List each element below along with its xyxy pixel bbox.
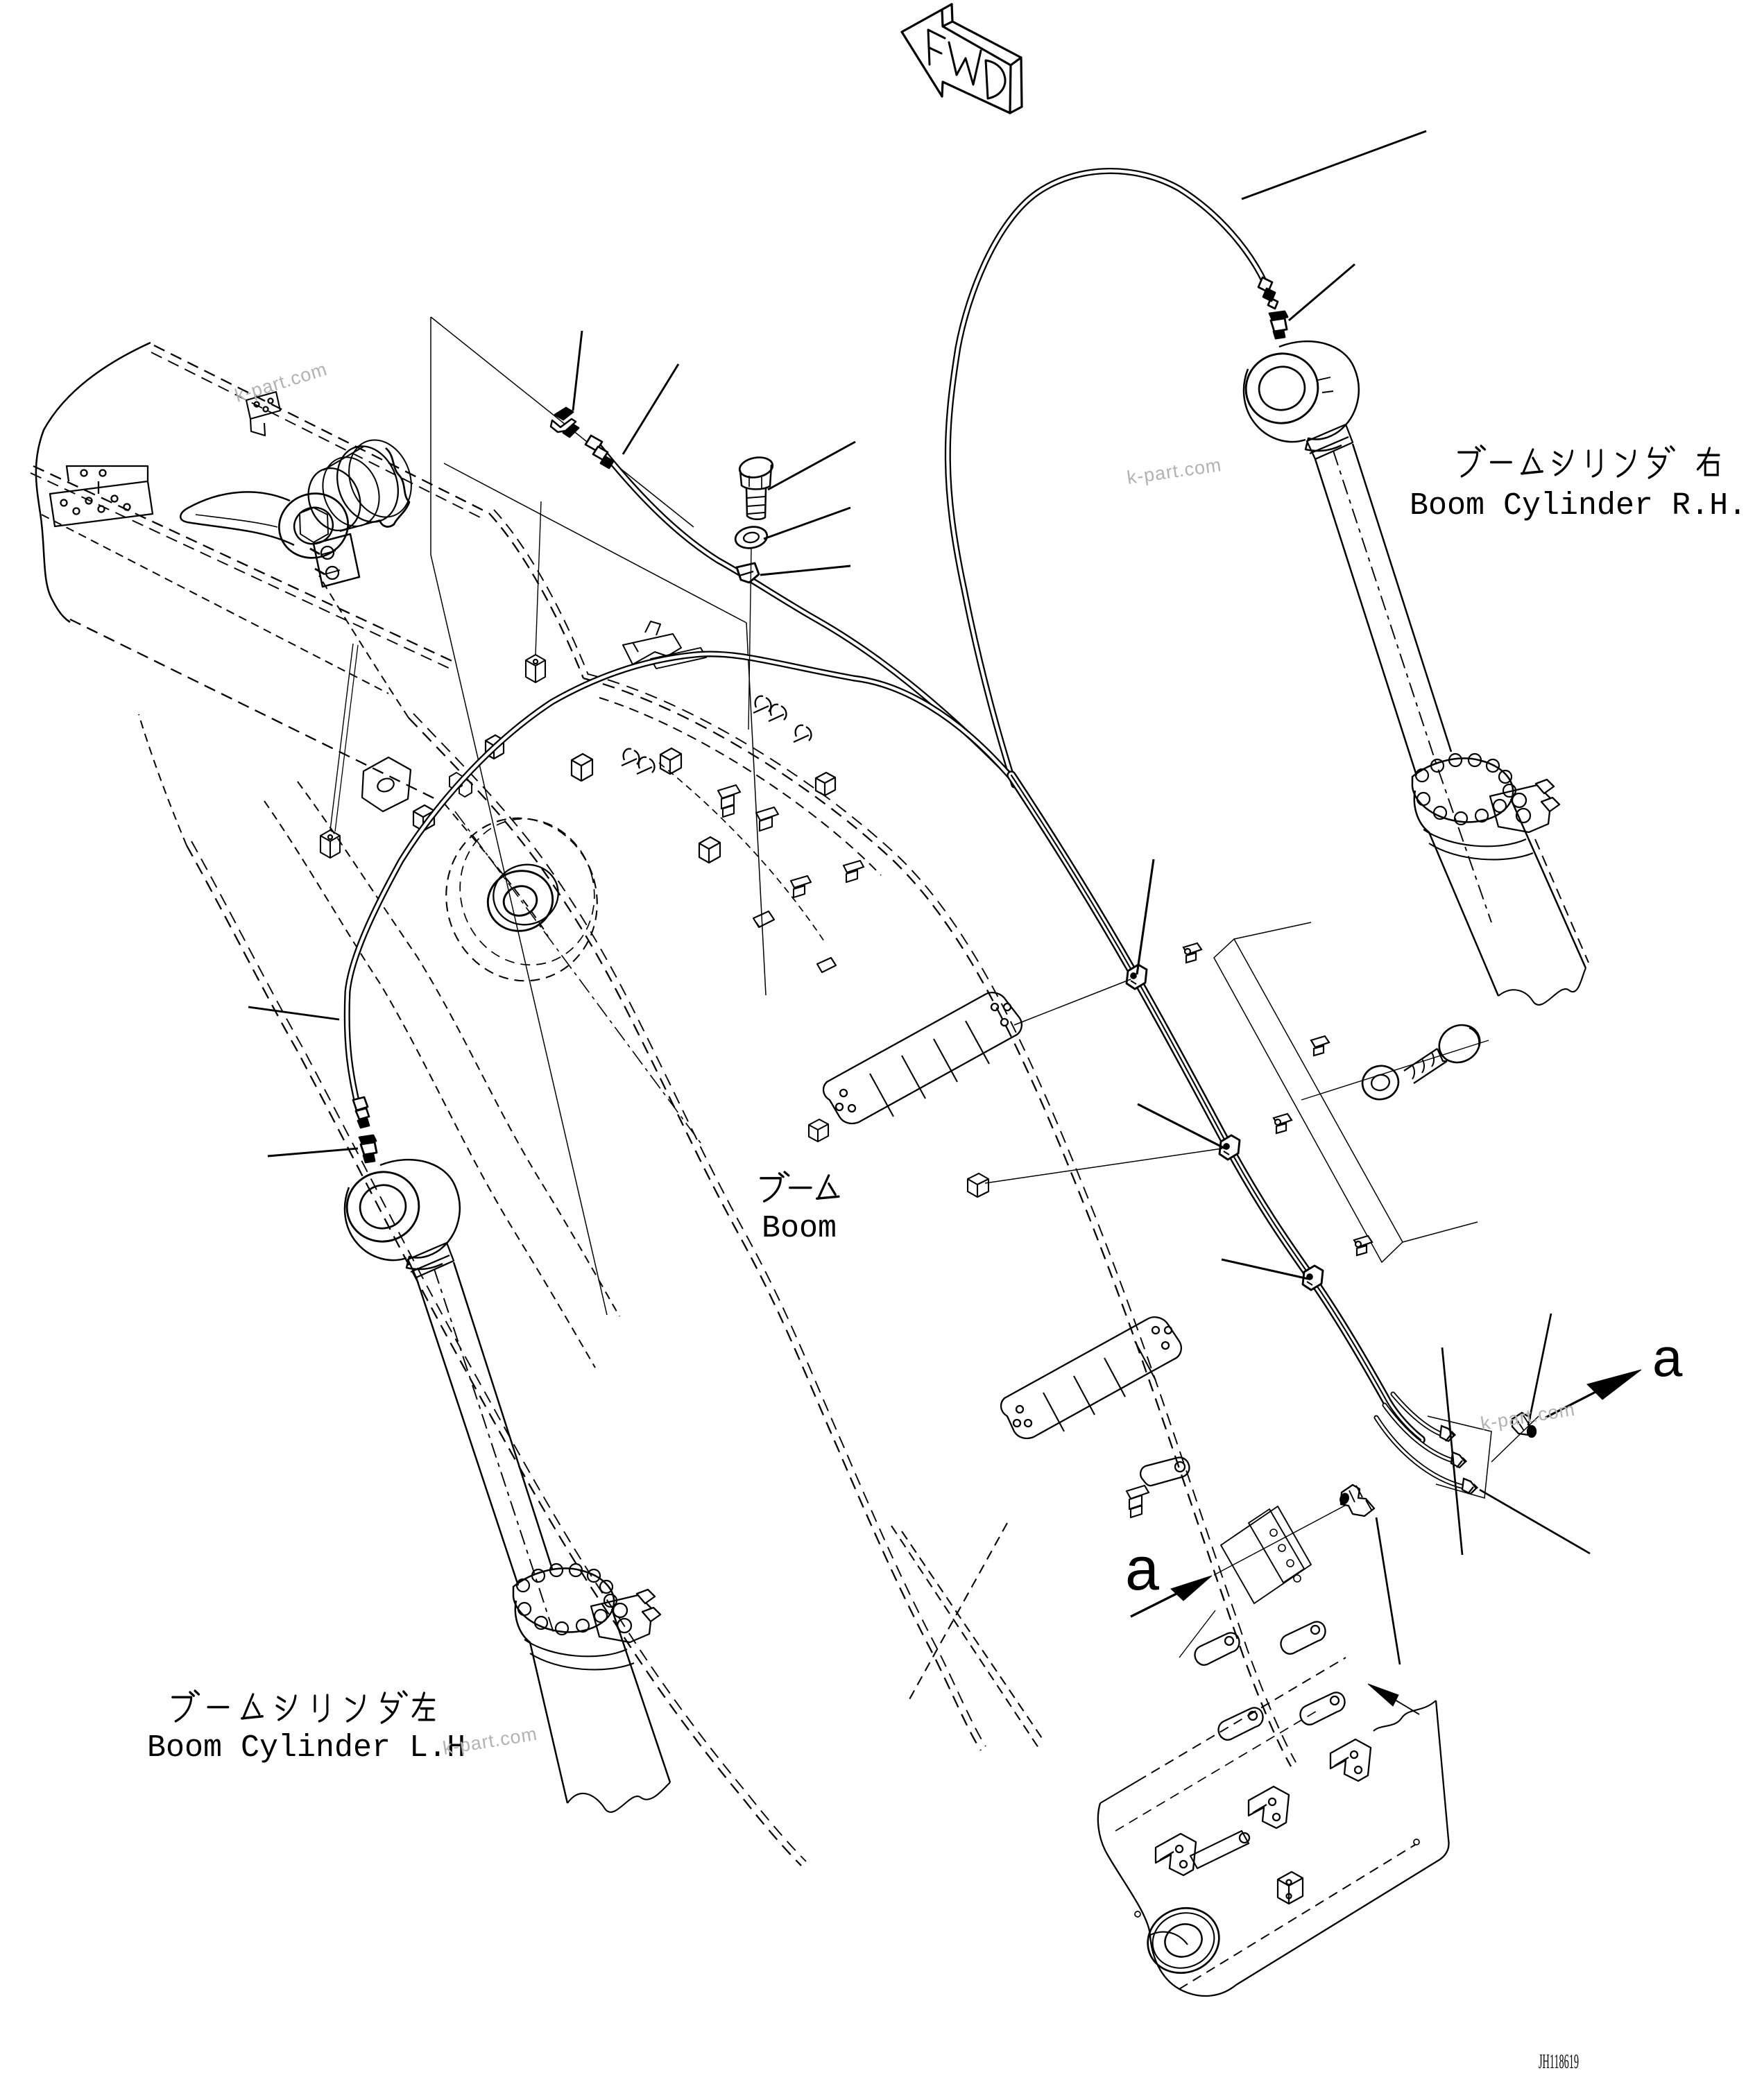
svg-text:Boom Cylinder R.H.: Boom Cylinder R.H. — [1410, 488, 1746, 524]
svg-text:Boom Cylinder L.H: Boom Cylinder L.H — [147, 1730, 465, 1766]
svg-text:a: a — [1652, 1327, 1683, 1388]
svg-text:Boom: Boom — [762, 1211, 837, 1246]
svg-text:a: a — [1125, 1534, 1159, 1603]
svg-text:JH118619: JH118619 — [1539, 2050, 1579, 2073]
